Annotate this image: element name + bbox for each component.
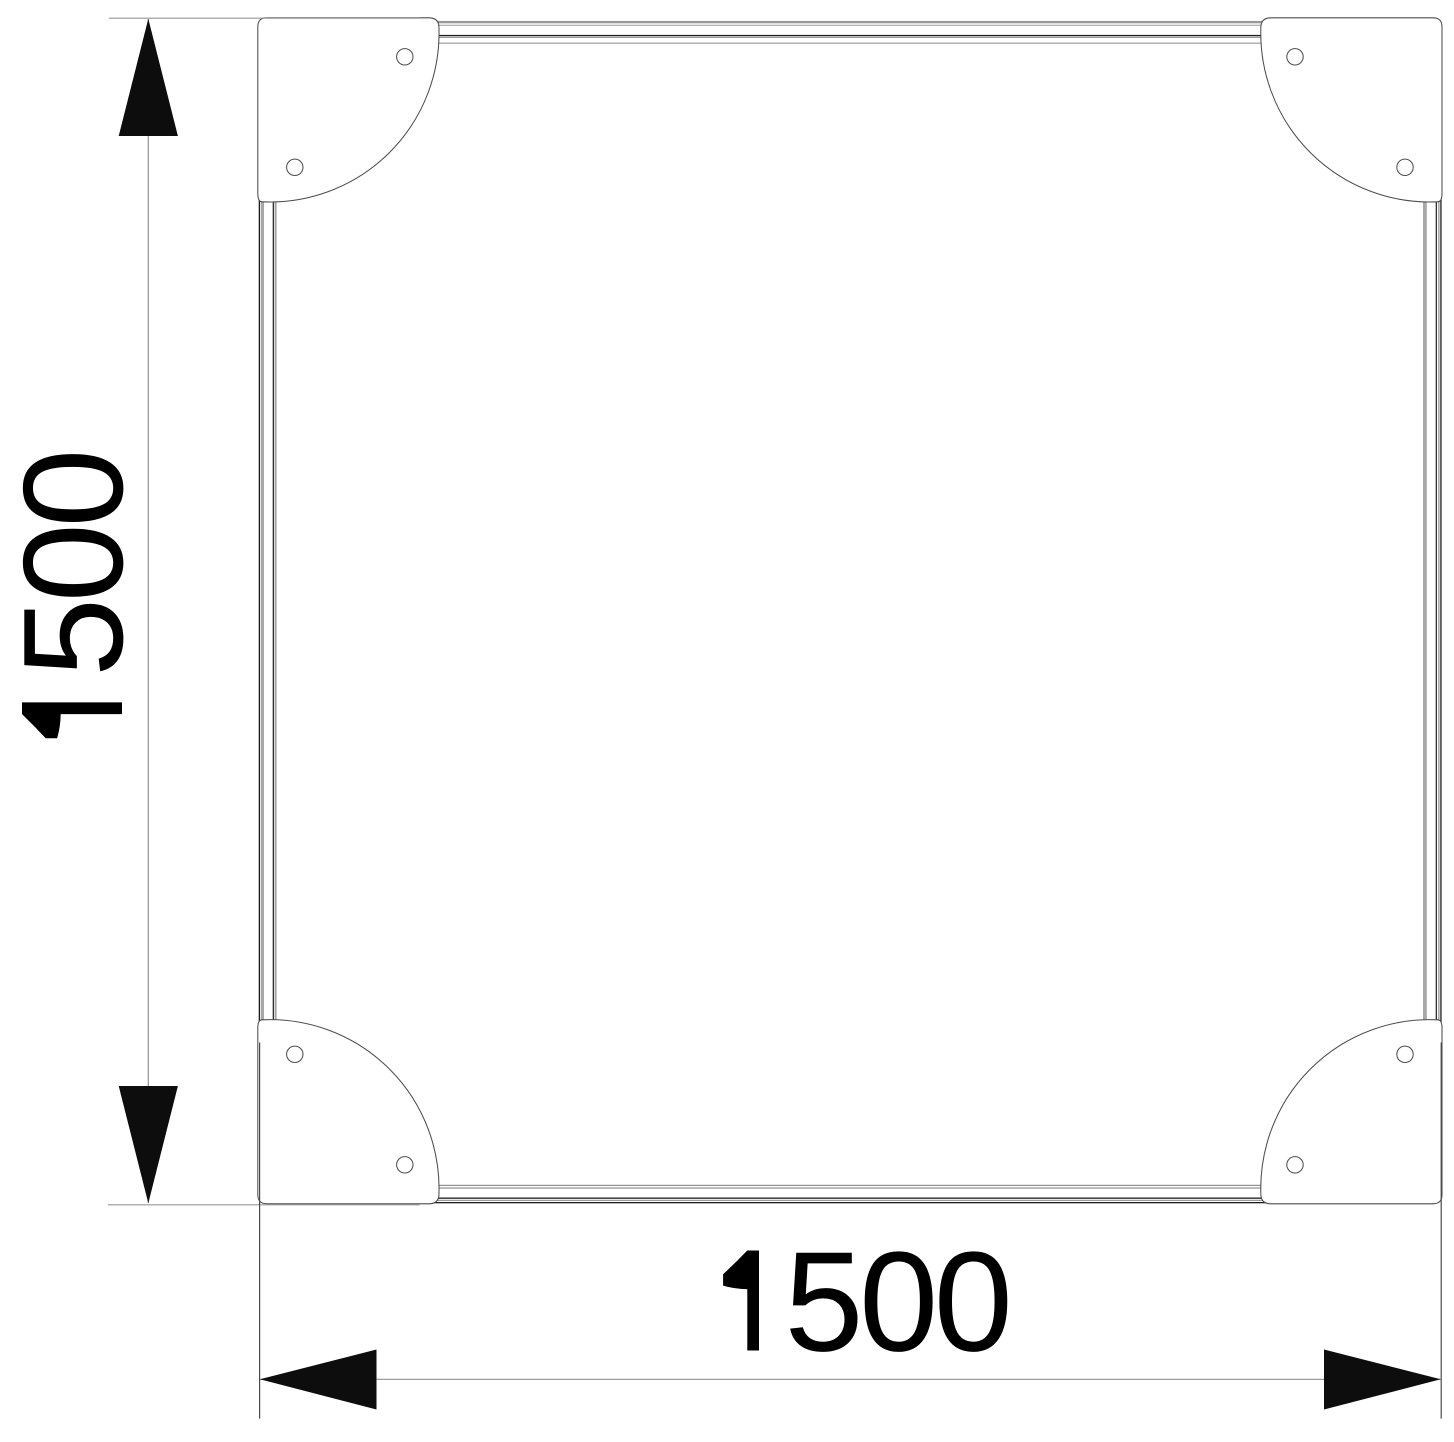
svg-text:500: 500 (0, 453, 153, 677)
svg-text:500: 500 (785, 1223, 1009, 1382)
